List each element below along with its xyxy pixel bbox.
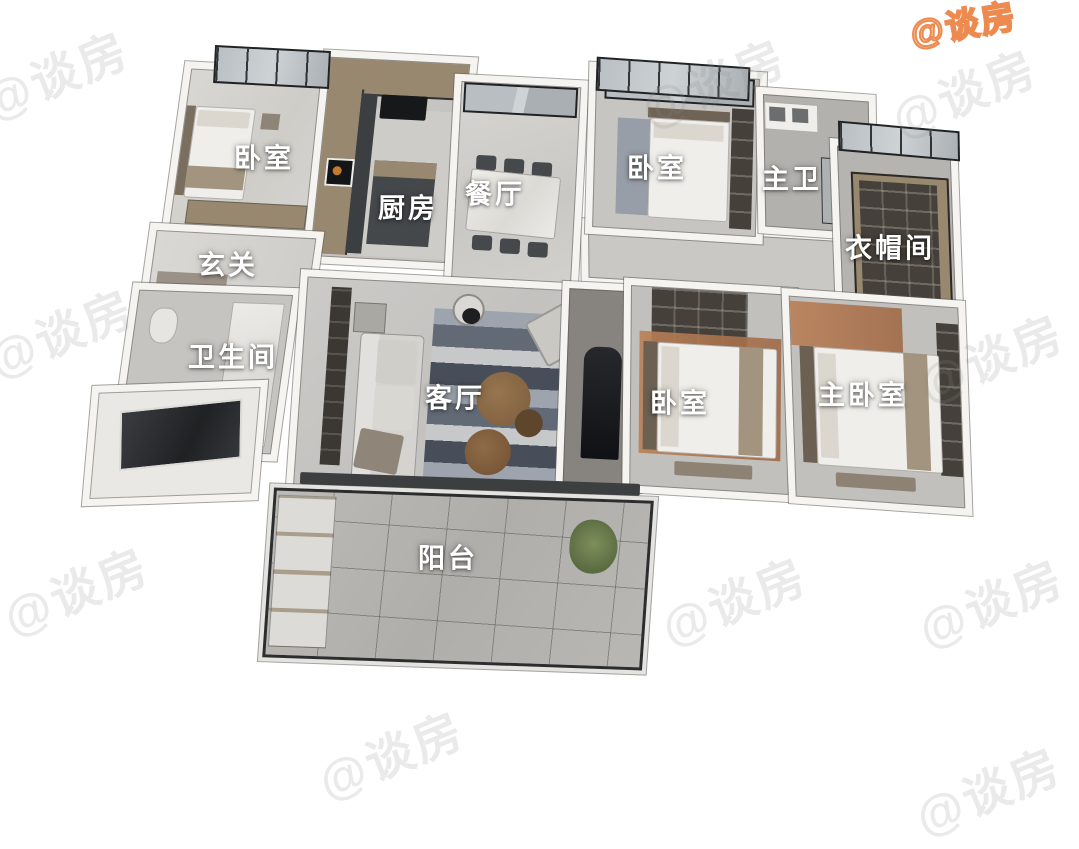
- bench: [836, 472, 916, 492]
- plant: [568, 519, 620, 575]
- sink: [379, 94, 427, 120]
- island-top: [373, 160, 437, 179]
- label-living: 客厅: [425, 377, 485, 416]
- label-kitchen: 厨房: [378, 187, 438, 226]
- sofa-cushion: [375, 339, 418, 385]
- bathtub-dark: [119, 398, 242, 471]
- label-master-bedroom: 主卧室: [818, 374, 908, 413]
- label-master-bath: 主卫: [762, 158, 822, 197]
- bay-window: [213, 45, 331, 89]
- label-balcony: 阳台: [418, 537, 478, 576]
- side-table: [353, 302, 387, 334]
- label-bedroom-top-right: 卧室: [627, 147, 687, 186]
- room-balcony: [262, 488, 654, 671]
- bench: [674, 461, 752, 480]
- label-bedroom-top-left: 卧室: [234, 137, 294, 176]
- label-entry: 玄关: [198, 244, 258, 283]
- tv-niche: [581, 346, 623, 460]
- label-bedroom-right: 卧室: [650, 382, 710, 421]
- room-shower: [89, 387, 260, 499]
- rug: [790, 301, 903, 353]
- sofa-cushion: [372, 385, 415, 431]
- wardrobe: [185, 200, 308, 230]
- label-closet: 衣帽间: [845, 227, 935, 266]
- dining-window: [463, 82, 578, 118]
- wardrobe: [729, 108, 754, 229]
- dining-chair: [527, 242, 548, 258]
- label-bathroom: 卫生间: [188, 336, 278, 375]
- bed-pillows: [196, 110, 250, 129]
- balcony-cabinet: [268, 495, 337, 649]
- bookshelf: [320, 287, 352, 466]
- toilet: [147, 307, 180, 344]
- sofa-throw: [353, 428, 404, 476]
- room-kitchen: [310, 57, 471, 264]
- floor-plan: [0, 0, 1079, 807]
- dining-chair: [500, 238, 521, 254]
- nightstand: [260, 113, 280, 130]
- dining-chair: [472, 235, 493, 251]
- label-dining: 餐厅: [465, 173, 525, 212]
- bed-throw: [738, 347, 763, 457]
- sink-basin: [769, 107, 785, 122]
- sink-basin: [792, 108, 808, 123]
